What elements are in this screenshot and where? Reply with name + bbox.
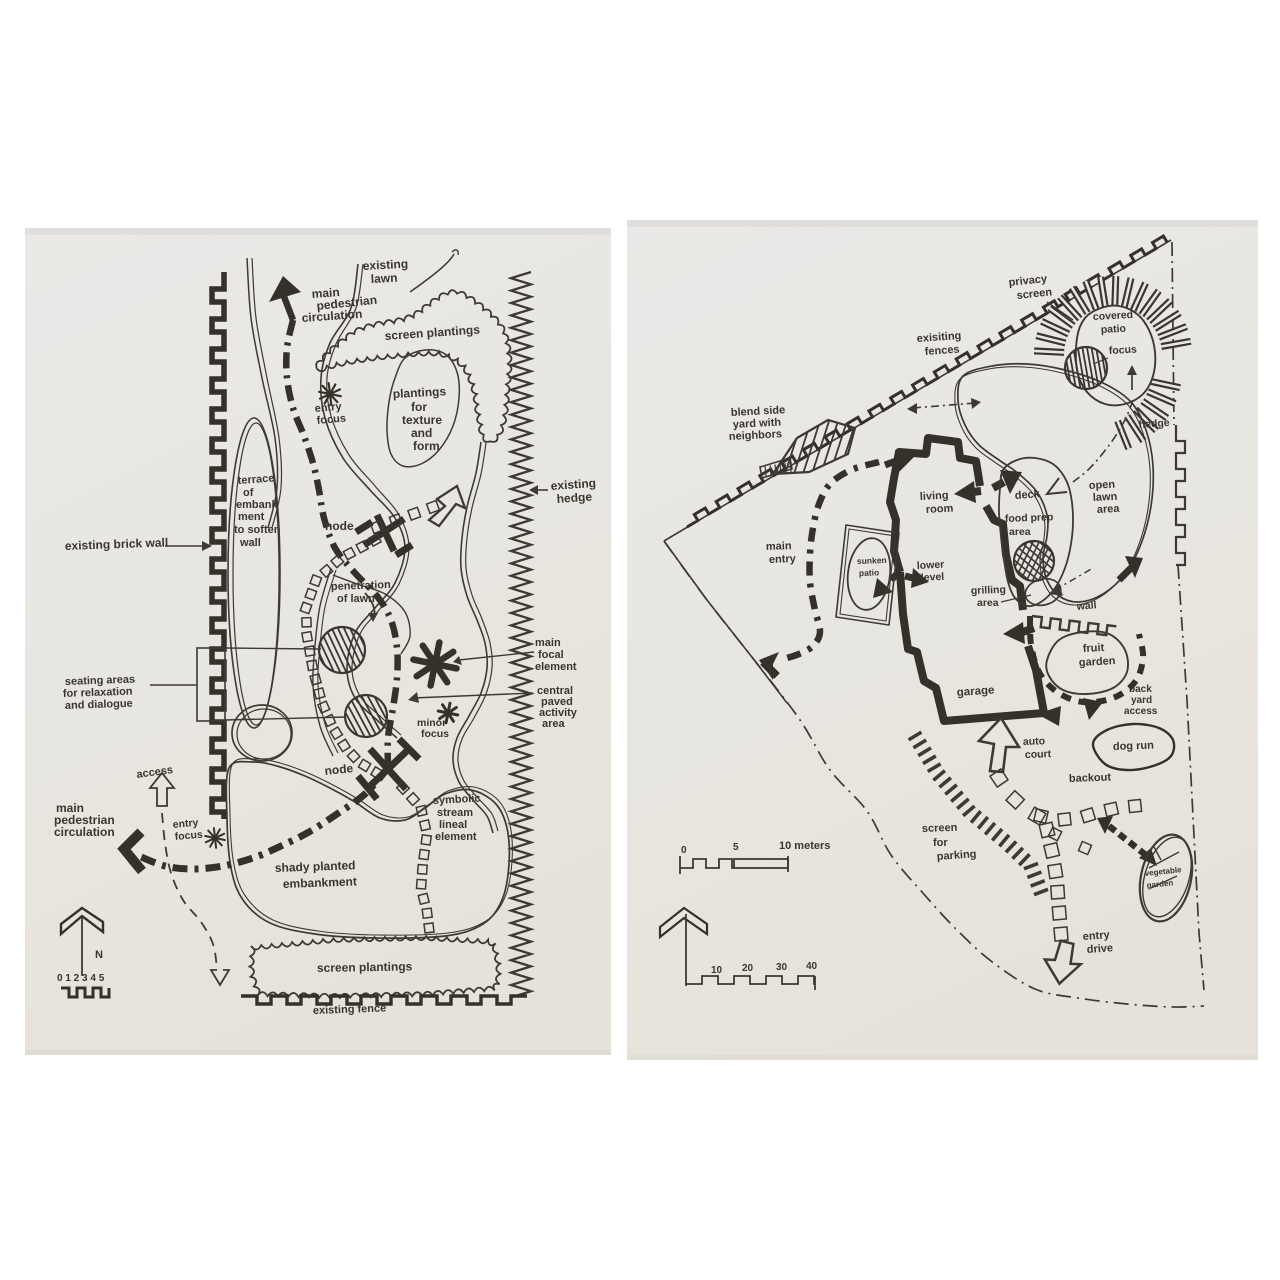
svg-text:open: open: [1089, 479, 1116, 492]
svg-text:of lawn: of lawn: [337, 593, 375, 605]
svg-text:focal: focal: [538, 649, 564, 661]
svg-text:plantings: plantings: [392, 384, 446, 401]
svg-text:10: 10: [711, 965, 723, 976]
svg-text:embankment: embankment: [283, 874, 357, 891]
svg-text:deck: deck: [1014, 488, 1041, 502]
svg-text:area: area: [1009, 526, 1031, 538]
svg-text:node: node: [325, 519, 354, 533]
svg-text:lawn: lawn: [1093, 491, 1118, 504]
svg-text:main: main: [535, 637, 561, 649]
svg-text:texture: texture: [402, 413, 442, 427]
svg-text:patio: patio: [859, 567, 880, 578]
svg-text:circulation: circulation: [54, 825, 115, 839]
svg-text:focus: focus: [421, 728, 449, 740]
svg-text:to soften: to soften: [234, 524, 281, 536]
svg-text:hedge: hedge: [556, 490, 593, 506]
svg-text:terrace: terrace: [237, 472, 274, 487]
svg-text:stream: stream: [437, 807, 473, 819]
svg-text:fruit: fruit: [1083, 642, 1105, 655]
svg-text:area: area: [542, 718, 566, 730]
svg-text:area: area: [1097, 503, 1121, 516]
svg-text:lawn: lawn: [370, 271, 397, 286]
svg-text:existing fence: existing fence: [313, 1002, 387, 1017]
svg-text:shady planted: shady planted: [275, 858, 356, 875]
svg-text:backout: backout: [1069, 772, 1112, 785]
svg-text:entry: entry: [1082, 929, 1111, 943]
svg-text:sunken: sunken: [857, 555, 887, 566]
svg-text:main: main: [766, 540, 792, 553]
svg-text:entry: entry: [769, 553, 797, 566]
svg-text:drive: drive: [1086, 942, 1113, 956]
svg-text:40: 40: [806, 961, 818, 972]
svg-text:N: N: [95, 949, 103, 961]
svg-text:0: 0: [681, 845, 687, 856]
svg-text:covered: covered: [1093, 309, 1134, 323]
svg-text:30: 30: [776, 962, 788, 973]
svg-text:screen plantings: screen plantings: [317, 959, 413, 975]
svg-text:penetration: penetration: [331, 579, 392, 593]
svg-text:yard: yard: [1131, 695, 1152, 706]
svg-text:garden: garden: [1079, 655, 1117, 669]
svg-text:screen: screen: [922, 822, 958, 835]
svg-text:room: room: [926, 503, 954, 516]
svg-text:20: 20: [742, 963, 754, 974]
svg-text:for: for: [933, 837, 948, 849]
svg-text:fences: fences: [924, 344, 960, 358]
svg-text:lower: lower: [917, 559, 945, 572]
svg-text:focus: focus: [316, 412, 346, 427]
svg-text:embank: embank: [236, 499, 278, 511]
svg-text:wall: wall: [1075, 599, 1097, 613]
svg-text:access: access: [1124, 706, 1158, 717]
svg-text:lineal: lineal: [439, 819, 467, 831]
svg-text:ment: ment: [238, 511, 265, 523]
svg-text:element: element: [435, 831, 477, 843]
svg-text:level: level: [921, 571, 945, 584]
svg-text:food prep: food prep: [1005, 511, 1054, 525]
svg-text:area: area: [977, 597, 999, 609]
svg-text:element: element: [535, 661, 577, 673]
svg-text:patio: patio: [1101, 323, 1127, 336]
svg-text:back: back: [1129, 684, 1152, 695]
svg-text:of: of: [243, 487, 254, 499]
svg-text:and: and: [411, 426, 432, 440]
svg-text:5: 5: [733, 842, 739, 853]
svg-text:focus: focus: [1109, 344, 1138, 357]
svg-text:wall: wall: [239, 537, 261, 549]
svg-text:focus: focus: [174, 829, 203, 843]
svg-text:auto: auto: [1023, 735, 1046, 748]
svg-text:dog run: dog run: [1113, 740, 1155, 753]
svg-text:living: living: [920, 490, 949, 503]
svg-text:10 meters: 10 meters: [779, 840, 830, 852]
svg-text:court: court: [1025, 748, 1052, 761]
svg-text:grilling: grilling: [971, 584, 1006, 597]
svg-text:for: for: [411, 400, 427, 414]
svg-text:and dialogue: and dialogue: [65, 698, 133, 712]
svg-text:hedge: hedge: [1138, 417, 1170, 431]
svg-text:0 1 2 3 4 5: 0 1 2 3 4 5: [57, 973, 105, 984]
svg-text:form: form: [413, 439, 440, 453]
svg-text:symbolic: symbolic: [433, 793, 481, 807]
